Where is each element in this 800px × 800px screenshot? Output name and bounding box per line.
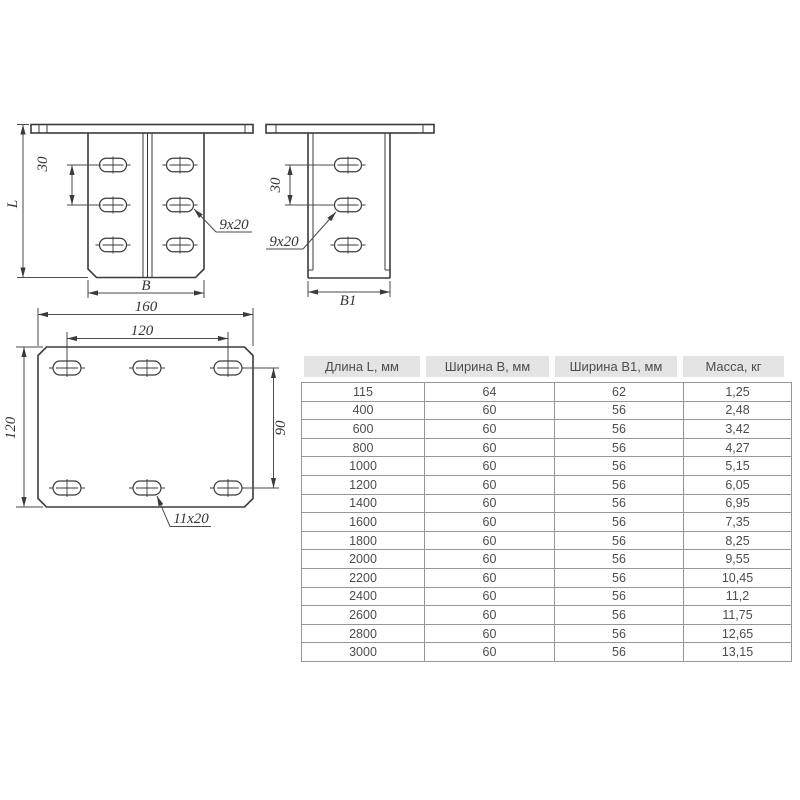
table-row: 11564621,25 [302, 383, 792, 402]
table-cell: 60 [425, 475, 555, 494]
table-row: 120060566,05 [302, 475, 792, 494]
column-header: Длина L, мм [304, 356, 420, 377]
table-cell: 1000 [302, 457, 425, 476]
dim-label-30: 30 [268, 177, 284, 194]
table-row: 2200605610,45 [302, 568, 792, 587]
table-cell: 56 [555, 531, 684, 550]
table-cell: 60 [425, 550, 555, 569]
table-cell: 10,45 [684, 568, 792, 587]
table-row: 160060567,35 [302, 513, 792, 532]
slot-hole [210, 359, 246, 377]
front-view-dimensions: L 30 9x20 B [5, 125, 252, 299]
table-cell: 60 [425, 643, 555, 662]
table-cell: 11,2 [684, 587, 792, 606]
table-cell: 11,75 [684, 606, 792, 625]
top-view-dimensions: 160 120 120 90 11x20 [3, 299, 289, 527]
table-cell: 2800 [302, 624, 425, 643]
slot-hole [129, 479, 165, 497]
table-body: 11564621,2540060562,4860060563,428006056… [302, 383, 792, 662]
table-row: 100060565,15 [302, 457, 792, 476]
top-view-part [38, 347, 253, 507]
table-cell: 60 [425, 624, 555, 643]
table-cell: 800 [302, 438, 425, 457]
table-cell: 56 [555, 438, 684, 457]
slot-hole [331, 197, 366, 214]
dim-label-B1: B1 [340, 293, 357, 309]
table-cell: 56 [555, 457, 684, 476]
table-cell: 64 [425, 383, 555, 402]
table-cell: 7,35 [684, 513, 792, 532]
spec-table: Длина L, ммШирина B, ммШирина B1, ммМасс… [301, 356, 787, 662]
top-view-drawing: 160 120 120 90 11x20 [5, 298, 297, 538]
table-cell: 2000 [302, 550, 425, 569]
table-cell: 1600 [302, 513, 425, 532]
table-cell: 13,15 [684, 643, 792, 662]
side-view-drawing: 30 9x20 B1 [258, 110, 440, 312]
table-cell: 4,27 [684, 438, 792, 457]
table-cell: 3,42 [684, 420, 792, 439]
slot-hole [49, 359, 85, 377]
table-cell: 56 [555, 568, 684, 587]
table-cell: 60 [425, 494, 555, 513]
table-cell: 400 [302, 401, 425, 420]
table-cell: 56 [555, 420, 684, 439]
dim-label-30: 30 [35, 156, 51, 173]
table-cell: 600 [302, 420, 425, 439]
table-cell: 1200 [302, 475, 425, 494]
table-row: 200060569,55 [302, 550, 792, 569]
slot-hole [210, 479, 246, 497]
column-header: Масса, кг [683, 356, 784, 377]
table-row: 80060564,27 [302, 438, 792, 457]
table-row: 3000605613,15 [302, 643, 792, 662]
slot-hole [96, 237, 131, 254]
table-cell: 60 [425, 513, 555, 532]
dim-label-160: 160 [135, 299, 158, 315]
front-view-part [31, 125, 253, 278]
table-cell: 56 [555, 587, 684, 606]
table-cell: 56 [555, 475, 684, 494]
table-row: 2600605611,75 [302, 606, 792, 625]
table-cell: 60 [425, 587, 555, 606]
table-row: 2400605611,2 [302, 587, 792, 606]
table-cell: 60 [425, 457, 555, 476]
table-cell: 2400 [302, 587, 425, 606]
table-cell: 56 [555, 606, 684, 625]
center-seam [143, 133, 152, 277]
table-row: 140060566,95 [302, 494, 792, 513]
spec-table-grid: 11564621,2540060562,4860060563,428006056… [301, 382, 792, 662]
table-cell: 8,25 [684, 531, 792, 550]
table-cell: 1800 [302, 531, 425, 550]
table-cell: 62 [555, 383, 684, 402]
slot-hole [49, 479, 85, 497]
dim-label-90: 90 [273, 420, 289, 436]
side-view-part [266, 125, 434, 279]
dim-label-120-left: 120 [3, 416, 19, 439]
top-plate-edge [266, 125, 434, 134]
table-cell: 56 [555, 401, 684, 420]
front-view-drawing: L 30 9x20 B [10, 110, 260, 310]
table-cell: 6,05 [684, 475, 792, 494]
table-cell: 60 [425, 606, 555, 625]
table-cell: 12,65 [684, 624, 792, 643]
table-cell: 9,55 [684, 550, 792, 569]
table-cell: 60 [425, 531, 555, 550]
slot-size-label: 11x20 [173, 511, 209, 527]
table-cell: 56 [555, 513, 684, 532]
dim-label-L: L [5, 200, 21, 209]
table-cell: 6,95 [684, 494, 792, 513]
table-cell: 56 [555, 643, 684, 662]
product-spec-sheet: L 30 9x20 B [0, 0, 800, 800]
side-view-dimensions: 30 9x20 B1 [266, 165, 390, 309]
slot-hole [331, 157, 366, 174]
slot-size-label: 9x20 [219, 217, 249, 233]
table-cell: 60 [425, 438, 555, 457]
slot-hole [331, 237, 366, 254]
slot-hole [163, 197, 198, 214]
slot-hole [163, 157, 198, 174]
table-cell: 1,25 [684, 383, 792, 402]
table-cell: 3000 [302, 643, 425, 662]
table-cell: 5,15 [684, 457, 792, 476]
dim-label-B: B [141, 278, 150, 294]
slot-hole [129, 359, 165, 377]
table-header-row: Длина L, ммШирина B, ммШирина B1, ммМасс… [301, 356, 787, 377]
table-cell: 56 [555, 624, 684, 643]
table-row: 2800605612,65 [302, 624, 792, 643]
table-cell: 1400 [302, 494, 425, 513]
table-cell: 60 [425, 420, 555, 439]
table-cell: 60 [425, 568, 555, 587]
column-header: Ширина B, мм [426, 356, 549, 377]
top-plate-edge [31, 125, 253, 134]
slot-hole [163, 237, 198, 254]
slot-size-label: 9x20 [269, 234, 299, 250]
table-cell: 2200 [302, 568, 425, 587]
table-row: 60060563,42 [302, 420, 792, 439]
table-cell: 2,48 [684, 401, 792, 420]
table-row: 180060568,25 [302, 531, 792, 550]
base-plate-outline [38, 347, 253, 507]
column-header: Ширина B1, мм [555, 356, 677, 377]
table-cell: 115 [302, 383, 425, 402]
table-cell: 2600 [302, 606, 425, 625]
dim-label-120-top: 120 [131, 323, 154, 339]
table-cell: 56 [555, 550, 684, 569]
table-row: 40060562,48 [302, 401, 792, 420]
table-cell: 60 [425, 401, 555, 420]
table-cell: 56 [555, 494, 684, 513]
